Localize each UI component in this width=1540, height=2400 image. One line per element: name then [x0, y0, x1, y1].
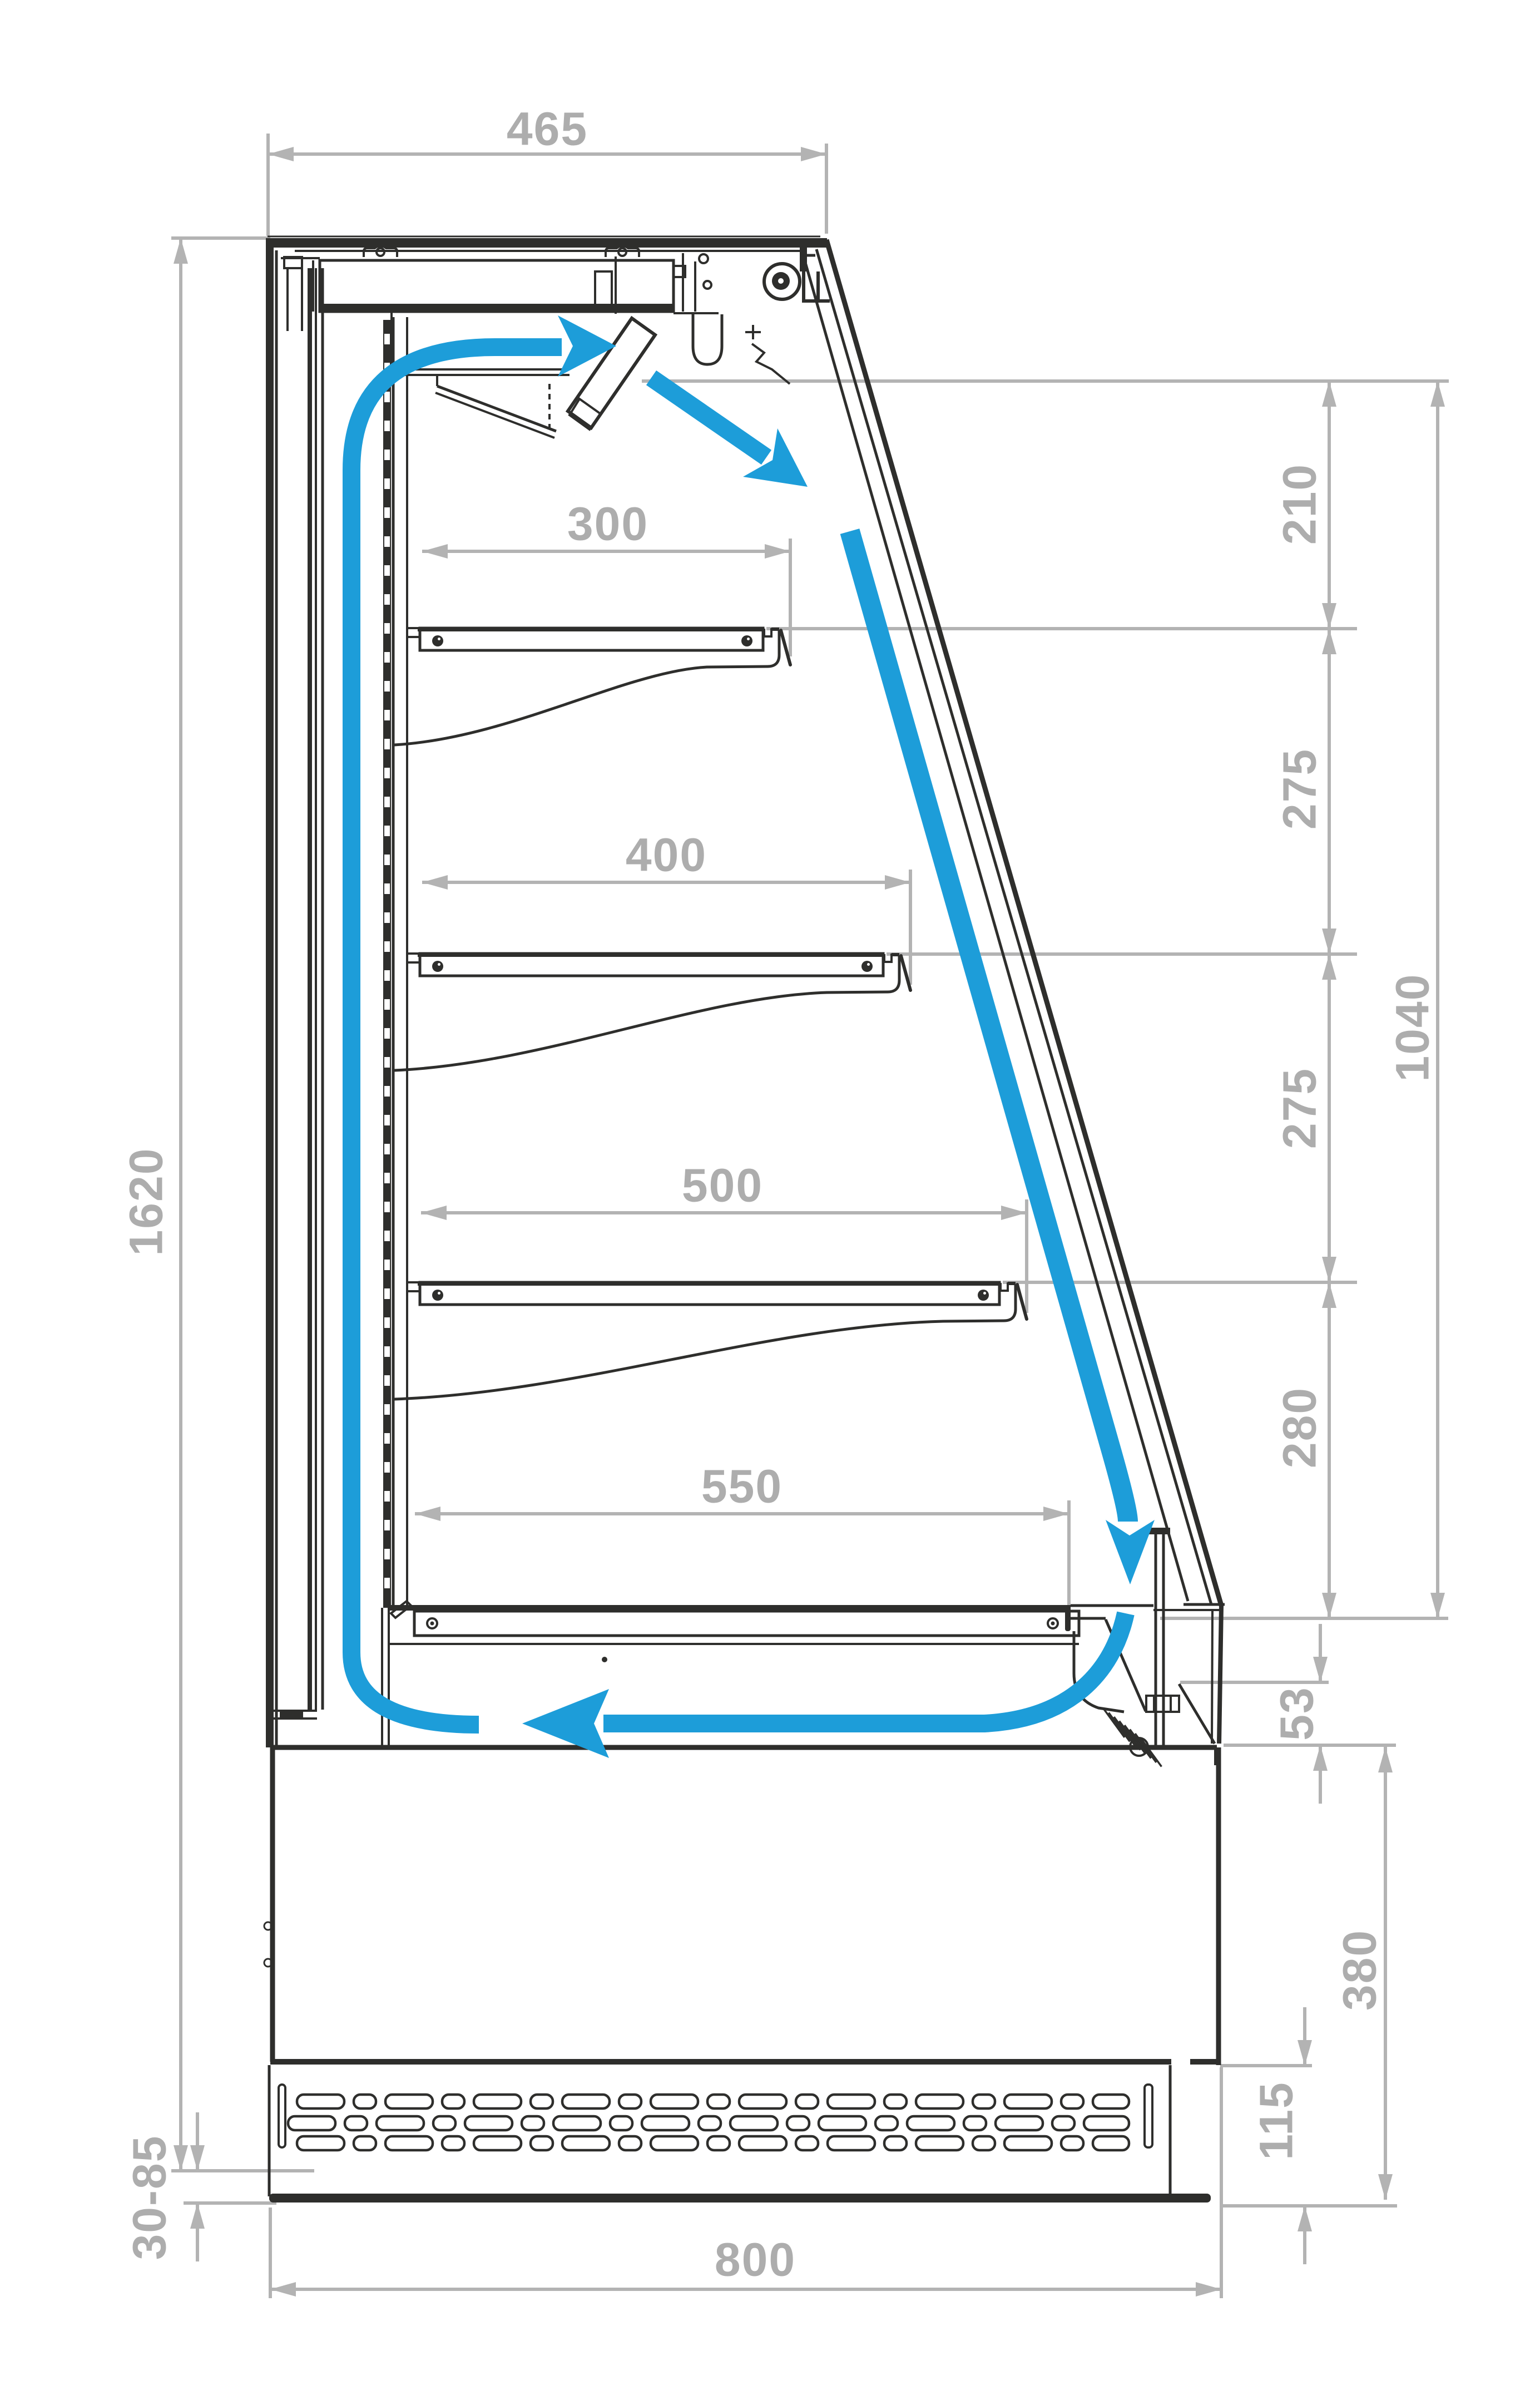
- svg-text:465: 465: [507, 102, 588, 155]
- svg-text:800: 800: [715, 2233, 796, 2285]
- svg-text:210: 210: [1273, 463, 1325, 545]
- svg-text:280: 280: [1273, 1387, 1325, 1468]
- svg-text:115: 115: [1250, 2081, 1302, 2160]
- svg-text:1620: 1620: [120, 1148, 172, 1256]
- svg-text:400: 400: [626, 828, 707, 881]
- svg-text:275: 275: [1273, 1068, 1325, 1149]
- svg-text:1040: 1040: [1386, 974, 1438, 1082]
- svg-text:30-85: 30-85: [123, 2135, 175, 2260]
- svg-text:53: 53: [1270, 1686, 1323, 1740]
- svg-text:275: 275: [1273, 748, 1325, 829]
- svg-text:550: 550: [701, 1460, 783, 1512]
- svg-text:300: 300: [567, 497, 648, 550]
- svg-text:500: 500: [682, 1159, 763, 1211]
- svg-text:380: 380: [1333, 1929, 1385, 2011]
